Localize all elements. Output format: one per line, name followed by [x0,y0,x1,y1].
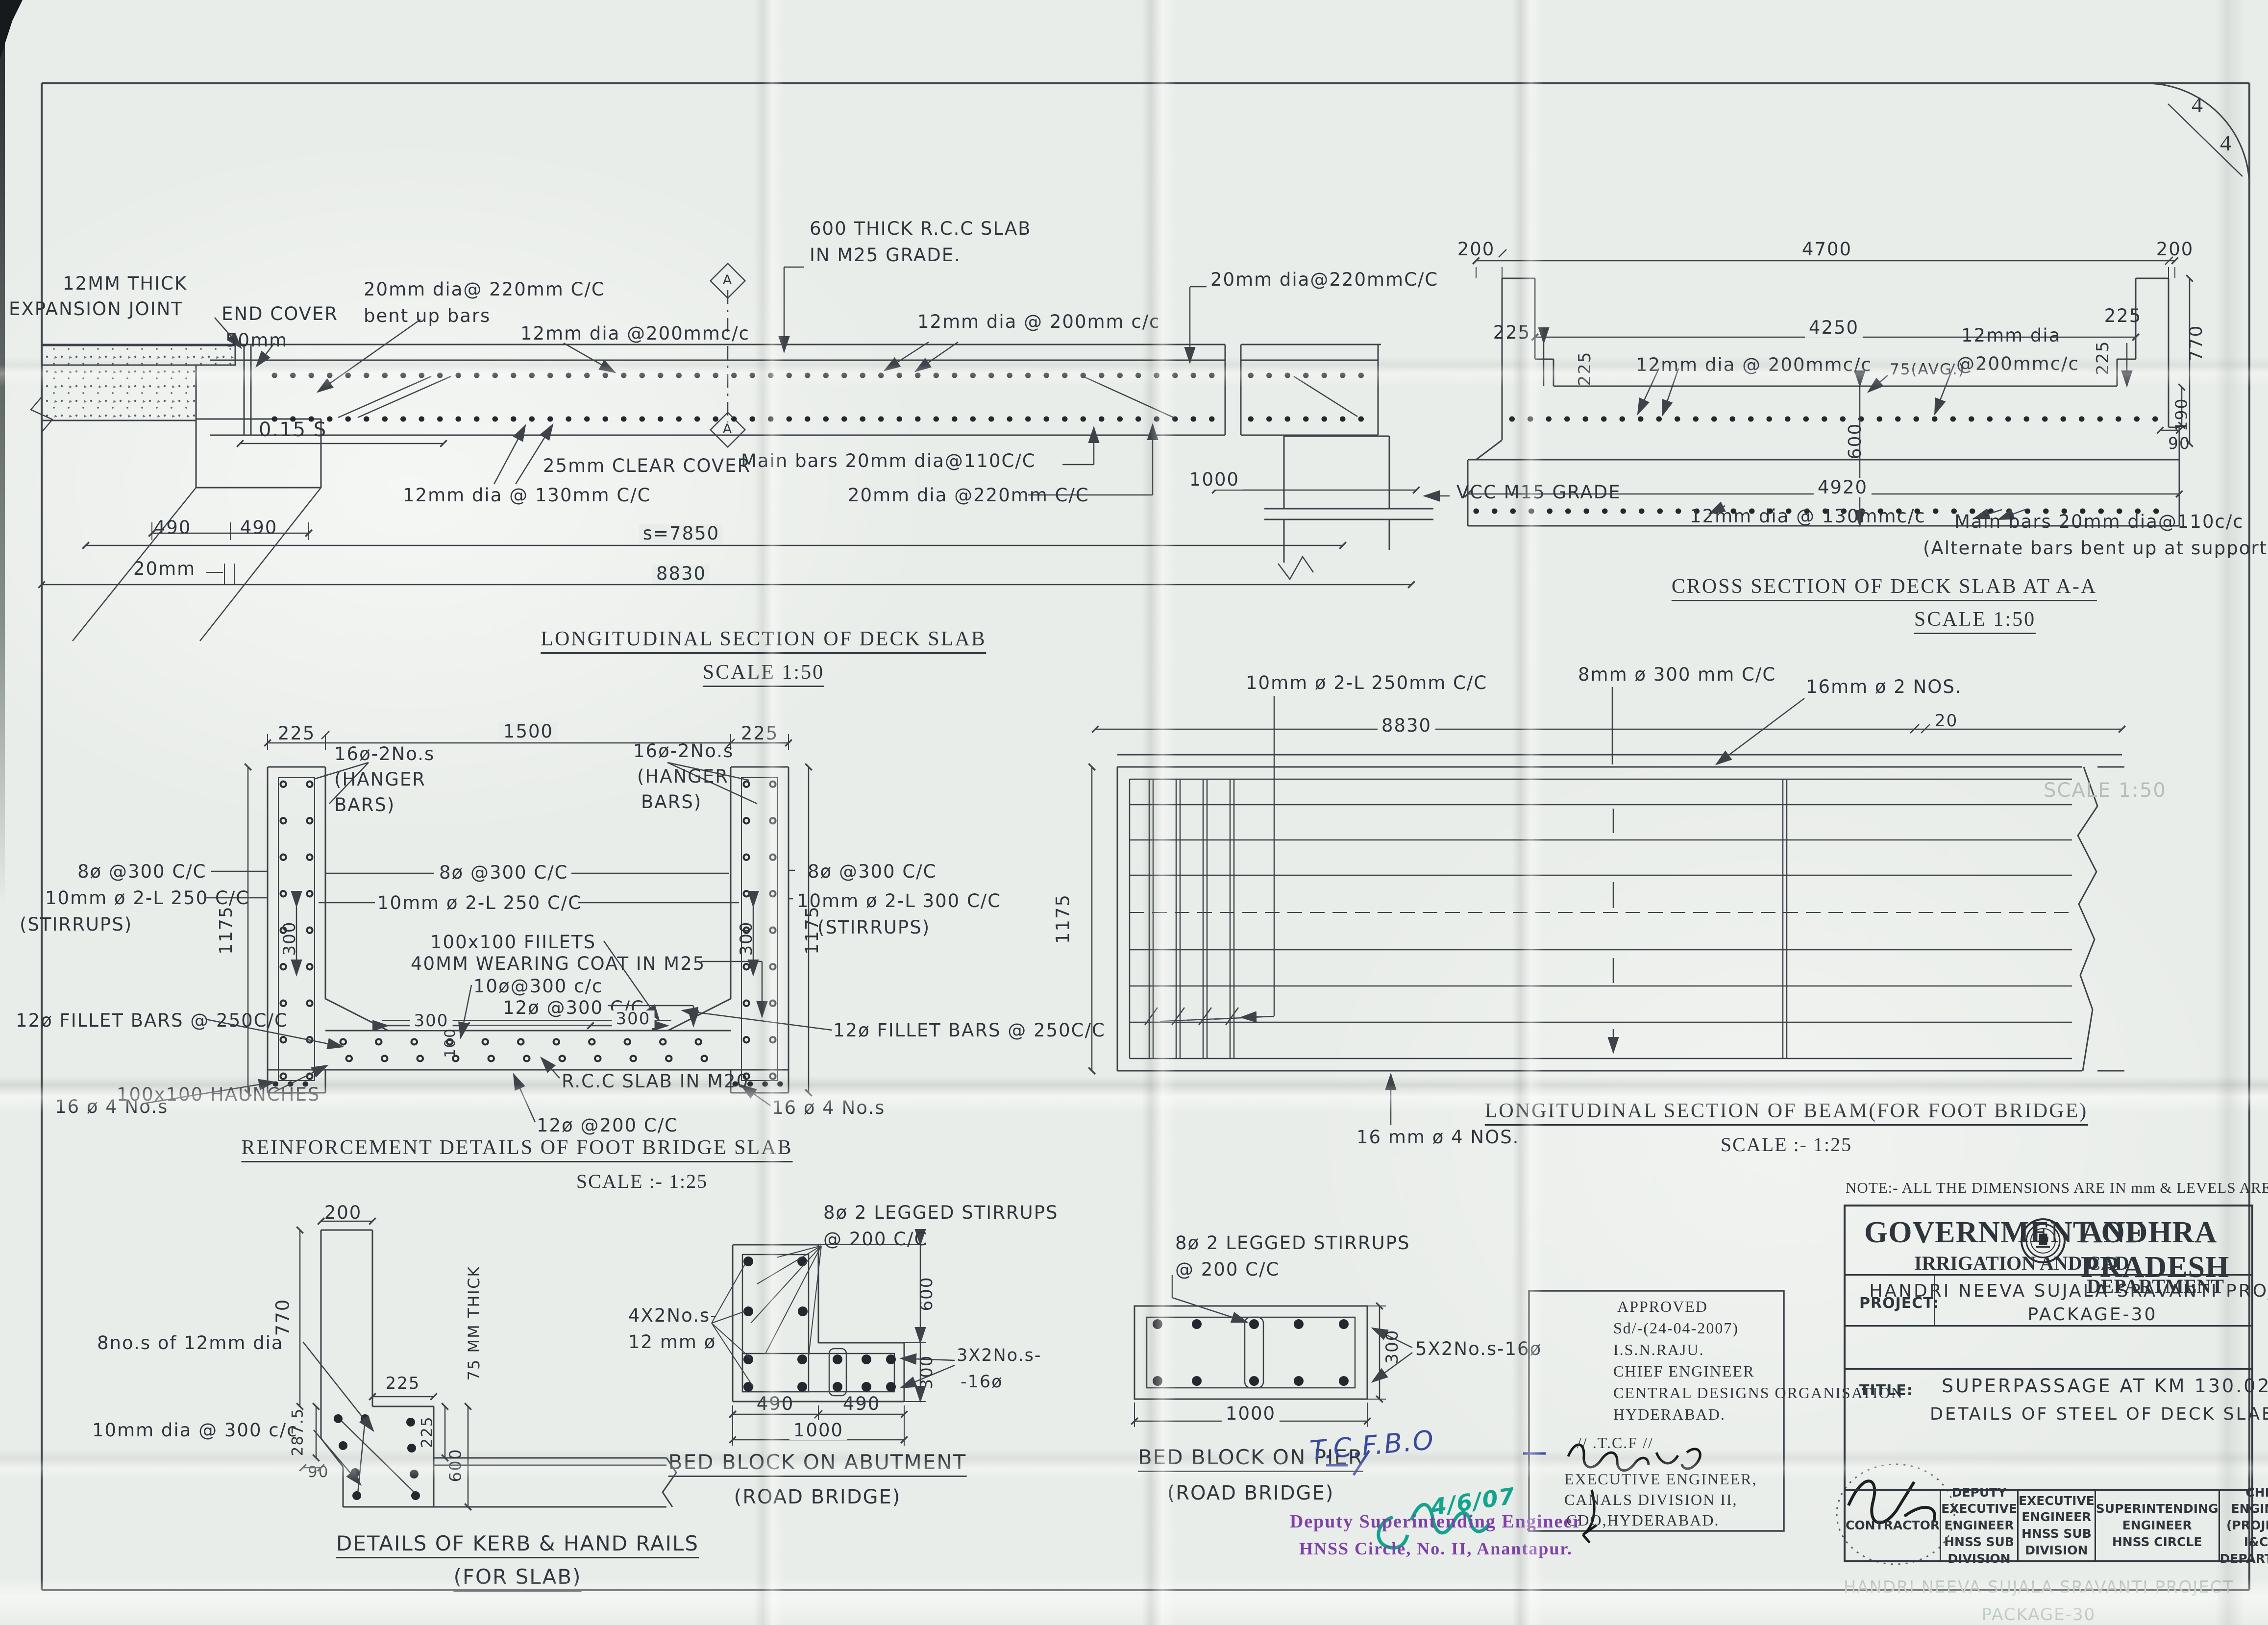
title-line2: DETAILS OF STEEL OF DECK SLAB & FOOT BRI… [1930,1404,2268,1424]
cross_section_deck_slab-label: 4920 [1814,478,1872,497]
approval_box-label: CDO,HYDERABAD. [1566,1512,1719,1529]
beam_foot_bridge-label: 16 mm ø 4 NOS. [1356,1128,1519,1147]
kerb_hand_rails-label: (FOR SLAB) [453,1566,581,1592]
cross_section_deck_slab-label: CROSS SECTION OF DECK SLAB AT A-A [1672,576,2097,601]
foot_bridge_slab-label: 300 [281,921,299,956]
sheet-label: SCALE 1:50 [2044,780,2167,801]
foot_bridge_slab-label: 225 [741,724,779,743]
kerb_hand_rails-label: 10mm dia @ 300 c/c [92,1421,297,1440]
beam_foot_bridge-label: LONGITUDINAL SECTION OF BEAM(FOR FOOT BR… [1485,1100,2088,1126]
longitudinal_deck_slab-label: 490 [154,518,192,538]
foot_bridge_slab-label: 40MM WEARING COAT IN M25 [411,955,705,974]
project-line1: HANDRI NEEVA SUJALA SRAVANTI PROJECT [1869,1281,2268,1301]
project-line2: PACKAGE-30 [2028,1305,2158,1325]
cross_section_deck_slab-label: 225 [1493,323,1531,343]
longitudinal_deck_slab-label: 50mm [225,331,288,350]
foot_bridge_slab-label: 16 ø 4 No.s [772,1099,885,1118]
foot_bridge_slab-label: 1175 [217,906,236,955]
cross_section_deck_slab-label: 770 [2187,325,2206,362]
foot_bridge_slab-label: 1500 [499,722,557,741]
longitudinal_deck_slab-label: END COVER [222,305,338,324]
signatory-cell: CHIEF ENGINEER (PROJECTS)I&CAD DEPARTMEN… [2219,1491,2268,1560]
foot_bridge_slab-label: 16 ø 4 No.s [55,1098,168,1117]
signatory-cell: DEPUTYEXECUTIVE ENGINEERHNSS SUB DIVISIO… [1940,1491,2017,1560]
title-line1: SUPERPASSAGE AT KM 130.023 [1942,1375,2268,1397]
bed_block_abutment-label: 490 [757,1395,794,1414]
foot_bridge_slab-label: 100x100 FIILETS [430,933,596,952]
foot_bridge_slab-label: 12ø FILLET BARS @ 250C/C [16,1011,288,1031]
foot_bridge_slab-label: 300 [612,1010,655,1028]
approval_box-label: // .T.C.F // [1577,1435,1653,1452]
kerb_hand_rails-label: 600 [447,1449,465,1482]
longitudinal_deck_slab-label: A [723,273,733,287]
cross_section_deck_slab-label: SCALE 1:50 [1914,609,2036,634]
bed_block_abutment-label: 600 [918,1277,936,1311]
cross_section_deck_slab-label: 4700 [1798,240,1856,259]
kerb_hand_rails-label: 200 [324,1204,362,1223]
bed_block_abutment-label: -16ø [961,1373,1003,1391]
beam_foot_bridge-label: SCALE :- 1:25 [1721,1134,1852,1155]
beam_foot_bridge-label: 20 [1935,713,1958,730]
foot_bridge_slab-label: 10mm ø 2-L 250 C/C [45,889,249,908]
bed_block_abutment-label: 490 [843,1395,881,1414]
bed_block_abutment-label: 1000 [789,1421,847,1440]
cross_section_deck_slab-label: 225 [2095,341,2112,375]
foot_bridge_slab-label: BARS) [334,796,395,815]
cross_section_deck_slab-label: 200 [2156,240,2194,259]
longitudinal_deck_slab-label: 20mm dia @220mm C/C [848,486,1089,505]
cross_section_deck_slab-label: 12mm dia @ 130mmc/c [1690,507,1926,526]
ap-government-emblem [2020,1217,2067,1264]
longitudinal_deck_slab-label: VCC M15 GRADE [1456,483,1621,502]
cross_section_deck_slab-label: 12mm dia @ 200mmc/c [1636,356,1872,375]
foot_bridge_slab-label: BARS) [641,793,702,812]
cross_section_deck_slab-label: 190 [2173,398,2191,432]
foot_bridge_slab-label: 8ø @300 C/C [77,862,206,882]
foot_bridge_slab-label: (HANGER [637,767,729,787]
signatory-line: HNSS SUB DIVISION [1941,1534,2017,1567]
title-block: GOVERNMENT OF ANDHRA PRADESH IRRIGATION … [1844,1205,2253,1562]
beam_foot_bridge-label: 10mm ø 2-L 250mm C/C [1246,674,1487,693]
cross_section_deck_slab-label: 600 [1846,423,1865,460]
foot_bridge_slab-label: 100 [443,1028,457,1058]
longitudinal_deck_slab-label: 12mm dia @ 130mm C/C [403,486,651,505]
foot_bridge_slab-label: (HANGER [334,770,426,789]
longitudinal_deck_slab-label: 8830 [652,565,710,584]
foot_bridge_slab-label: SCALE :- 1:25 [576,1171,708,1192]
bed_block_pier-label: 8ø 2 LEGGED STIRRUPS [1175,1234,1410,1253]
approval_box-label: CANALS DIVISION II, [1564,1492,1738,1508]
title-label: TITLE: [1859,1382,1913,1399]
signatory-line: I&CAD DEPARTMENT [2220,1534,2268,1567]
foot_bridge_slab-label: 300 [738,921,756,956]
cross_section_deck_slab-label: 225 [2104,307,2142,326]
stamps-label: Deputy Superintending Engineer [1290,1512,1582,1532]
signatory-line: SUPERINTENDING [2096,1501,2219,1517]
sheet-label: 4 [2220,131,2232,155]
longitudinal_deck_slab-label: SCALE 1:50 [703,662,824,687]
approval_box-label: EXECUTIVE ENGINEER, [1564,1471,1757,1488]
bed_block_abutment-label: 12 mm ø [628,1333,716,1352]
bed_block_abutment-label: 8ø 2 LEGGED STIRRUPS [823,1204,1059,1223]
signatory-line: CHIEF ENGINEER (PROJECTS) [2220,1484,2268,1534]
beam_foot_bridge-label: 16mm ø 2 NOS. [1806,678,1962,697]
longitudinal_deck_slab-label: IN M25 GRADE. [810,246,961,265]
longitudinal_deck_slab-label: A [723,422,733,436]
longitudinal_deck_slab-label: bent up bars [364,307,491,326]
kerb_hand_rails-label: 8no.s of 12mm dia [97,1334,284,1353]
approval_box-label: CHIEF ENGINEER [1613,1363,1754,1380]
bed_block_pier-label: 5X2No.s-16ø [1415,1340,1542,1359]
longitudinal_deck_slab-label: 20mm dia@220mmC/C [1210,271,1438,290]
longitudinal_deck_slab-label: LONGITUDINAL SECTION OF DECK SLAB [541,628,986,654]
signatory-line: EXECUTIVE ENGINEER [1941,1501,2017,1534]
cross_section_deck_slab-label: 75(AVG.) [1890,362,1965,378]
longitudinal_deck_slab-label: 12mm dia @ 200mm c/c [917,313,1160,332]
bed_block_pier-label: (ROAD BRIDGE) [1167,1483,1334,1503]
cross_section_deck_slab-label: 90 [2168,435,2191,452]
longitudinal_deck_slab-label: 12mm dia @200mmc/c [520,324,750,344]
kerb_hand_rails-label: DETAILS OF KERB & HAND RAILS [336,1533,699,1558]
bed_block_abutment-label: (ROAD BRIDGE) [734,1487,901,1507]
bed_block_pier-label: 1000 [1222,1404,1280,1424]
cross_section_deck_slab-label: Main bars 20mm dia@110c/c [1954,513,2244,532]
foot_bridge_slab-label: R.C.C SLAB IN M20 [562,1072,749,1091]
bed_block_abutment-label: 3X2No.s- [957,1347,1041,1365]
foot_bridge_slab-label: 16ø-2No.s [334,745,435,764]
bed_block_abutment-label: BED BLOCK ON ABUTMENT [668,1452,967,1477]
foot_bridge_slab-label: 8ø @300 C/C [808,862,937,882]
longitudinal_deck_slab-label: 0.15 S [259,419,327,440]
longitudinal_deck_slab-label: 490 [240,518,278,538]
dimensions-note: NOTE:- ALL THE DIMENSIONS ARE IN mm & LE… [1846,1180,2268,1196]
foot_bridge_slab-label: 16ø-2No.s [633,742,734,761]
foot_bridge_slab-label: (STIRRUPS) [20,915,132,935]
cross_section_deck_slab-label: 200 [1457,240,1495,259]
beam_foot_bridge-label: 8mm ø 300 mm C/C [1578,665,1776,685]
cross_section_deck_slab-label: 12mm dia [1961,326,2061,345]
bed_block_abutment-label: 300 [918,1355,936,1390]
longitudinal_deck_slab-label: 25mm CLEAR COVER [543,457,751,476]
stamps-label: HNSS Circle, No. II, Anantapur. [1299,1540,1573,1558]
foot_bridge_slab-label: 225 [278,724,316,743]
foot_bridge_slab-label: 8ø @300 C/C [439,863,568,883]
signatory-cell: CONTRACTOR [1846,1491,1940,1560]
beam_foot_bridge-label: 1175 [1054,894,1073,944]
sheet-label: PACKAGE-30 [1982,1606,2095,1624]
longitudinal_deck_slab-label: 12MM THICK [63,274,187,294]
bed_block_pier-label: @ 200 C/C [1175,1260,1280,1280]
kerb_hand_rails-label: 90 [308,1464,329,1480]
foot_bridge_slab-label: 10mm ø 2-L 250 C/C [377,894,582,913]
foot_bridge_slab-label: 1175 [803,906,822,955]
scanned-engineering-drawing: { "sheet": { "page_number": "4/4", "pape… [0,0,2268,1625]
signatory-line: ENGINEER [2122,1517,2192,1534]
signatory-line: HNSS SUB DIVISION [2019,1526,2095,1559]
cross_section_deck_slab-label: @200mmc/c [1956,355,2079,374]
signatory-line: HNSS CIRCLE [2112,1534,2202,1551]
bed_block_pier-label: 300 [1384,1330,1402,1364]
kerb_hand_rails-label: 770 [274,1299,293,1336]
signatory-row: CONTRACTORDEPUTYEXECUTIVE ENGINEERHNSS S… [1846,1489,2251,1560]
cross_section_deck_slab-label: 4250 [1805,319,1863,338]
approval_box-label: HYDERABAD. [1613,1406,1726,1423]
kerb_hand_rails-label: 225 [386,1375,420,1393]
signatory-line: CONTRACTOR [1846,1517,1940,1534]
kerb_hand_rails-label: 75 MM THICK [466,1266,483,1381]
approval_box-label: I.S.N.RAJU. [1613,1342,1704,1358]
foot_bridge_slab-label: 12ø @200 C/C [537,1116,678,1135]
longitudinal_deck_slab-label: Main bars 20mm dia@110C/C [741,452,1036,471]
approval_box-label: APPROVED [1617,1299,1708,1315]
foot_bridge_slab-label: (STIRRUPS) [817,918,930,937]
bed_block_abutment-label: @ 200 C/C [823,1230,928,1249]
sheet-label: 4 [2192,93,2204,117]
kerb_hand_rails-label: 225 [419,1416,436,1448]
signatory-cell: EXECUTIVE ENGINEERHNSS SUB DIVISION [2017,1491,2095,1560]
longitudinal_deck_slab-label: 20mm [133,560,196,579]
cross_section_deck_slab-label: 225 [1577,351,1594,386]
foot_bridge_slab-label: 10ø@300 c/c [473,977,603,996]
foot_bridge_slab-label: REINFORCEMENT DETAILS OF FOOT BRIDGE SLA… [242,1137,793,1162]
longitudinal_deck_slab-label: 1000 [1185,470,1243,490]
signatory-cell: SUPERINTENDINGENGINEERHNSS CIRCLE [2095,1491,2219,1560]
longitudinal_deck_slab-label: 600 THICK R.C.C SLAB [810,220,1032,239]
longitudinal_deck_slab-label: s=7850 [639,524,723,543]
cross_section_deck_slab-label: (Alternate bars bent up at supports) [1923,539,2268,558]
sheet-label: HANDRI NEEVA SUJALA SRAVANTI PROJECT [1844,1579,2234,1597]
bed_block_abutment-label: 4X2No.s- [628,1306,717,1326]
signatory-line: EXECUTIVE ENGINEER [2019,1493,2095,1526]
longitudinal_deck_slab-label: 20mm dia@ 220mm C/C [364,280,605,299]
beam_foot_bridge-label: 8830 [1378,716,1435,736]
signatory-line: DEPUTY [1952,1484,2007,1501]
foot_bridge_slab-label: 10mm ø 2-L 300 C/C [797,892,1001,911]
approval_box-label: Sd/-(24-04-2007) [1613,1320,1739,1337]
longitudinal_deck_slab-label: EXPANSION JOINT [9,300,183,319]
foot_bridge_slab-label: 12ø FILLET BARS @ 250C/C [833,1021,1106,1040]
